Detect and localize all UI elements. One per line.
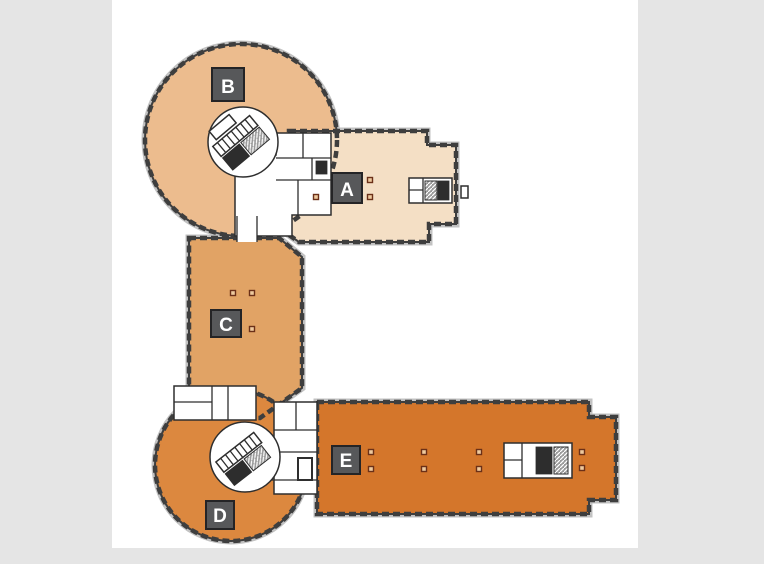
section-c-label: C bbox=[211, 310, 241, 337]
section-b-label: B bbox=[212, 68, 244, 101]
svg-text:D: D bbox=[213, 506, 227, 527]
svg-text:A: A bbox=[340, 180, 354, 201]
floor-plan-image: B A C D E bbox=[112, 0, 638, 548]
svg-text:B: B bbox=[221, 77, 235, 98]
core-a bbox=[409, 178, 452, 203]
section-e-label: E bbox=[332, 446, 360, 474]
link-block-c-d bbox=[174, 386, 256, 420]
svg-text:C: C bbox=[219, 315, 233, 336]
detail-a-right bbox=[461, 186, 468, 198]
passage-b-c bbox=[237, 216, 257, 242]
floor-plan-svg: B A C D E bbox=[112, 0, 638, 548]
section-a-label: A bbox=[332, 173, 362, 203]
page-background: { "page": { "background_color": "#e5e5e5… bbox=[0, 0, 764, 564]
section-d-label: D bbox=[206, 501, 234, 529]
svg-text:E: E bbox=[340, 451, 353, 472]
core-e bbox=[504, 443, 572, 478]
